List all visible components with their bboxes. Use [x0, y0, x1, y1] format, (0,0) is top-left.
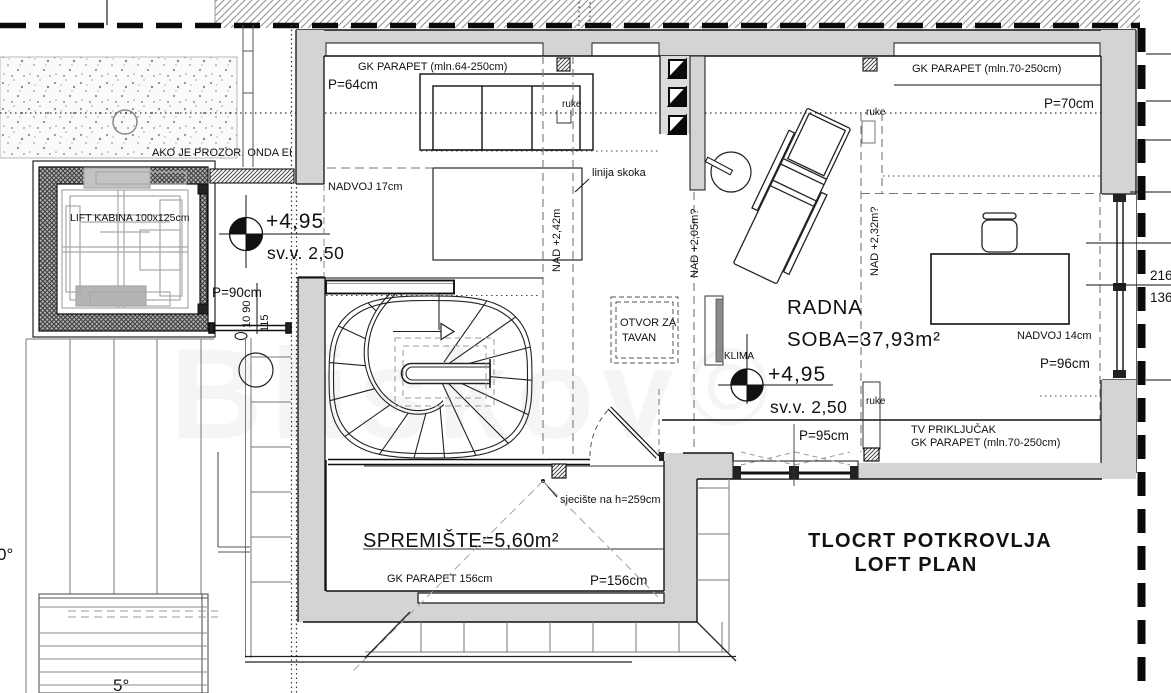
svg-text:NAD +2,42m: NAD +2,42m — [551, 209, 563, 272]
svg-text:GK PARAPET (mln.64-250cm): GK PARAPET (mln.64-250cm) — [358, 61, 507, 73]
svg-text:Bliskov: Bliskov — [170, 323, 681, 466]
svg-text:NADVOJ 17cm: NADVOJ 17cm — [328, 181, 403, 193]
svg-text:NAD +2,05m?: NAD +2,05m? — [689, 209, 701, 278]
svg-text:LIFT KABINA 100x125cm: LIFT KABINA 100x125cm — [70, 212, 190, 224]
svg-text:0°: 0° — [0, 545, 13, 564]
svg-text:P=70cm: P=70cm — [1044, 96, 1094, 111]
svg-text:OTVOR ZA: OTVOR ZA — [620, 317, 677, 329]
svg-text:10 90: 10 90 — [241, 300, 253, 328]
svg-text:+4,95: +4,95 — [768, 363, 826, 386]
svg-text:sjecište na h=259cm: sjecište na h=259cm — [560, 494, 661, 506]
svg-text:RADNA: RADNA — [787, 296, 863, 319]
svg-text:TV PRIKLJUČAK: TV PRIKLJUČAK — [911, 423, 997, 436]
svg-text:P=64cm: P=64cm — [328, 77, 378, 92]
svg-text:P=90cm: P=90cm — [212, 285, 262, 300]
svg-text:P=95cm: P=95cm — [799, 428, 849, 443]
svg-text:ruke: ruke — [866, 396, 886, 407]
svg-text:P=156cm: P=156cm — [590, 573, 647, 588]
svg-text:ruke: ruke — [562, 99, 582, 110]
svg-text:136: 136 — [1150, 290, 1171, 305]
svg-text:+4,95: +4,95 — [266, 210, 324, 233]
svg-text:ruke: ruke — [866, 107, 886, 118]
svg-text:NADVOJ 14cm: NADVOJ 14cm — [1017, 330, 1092, 342]
svg-text:sv.v. 2,50: sv.v. 2,50 — [267, 243, 344, 263]
svg-text:216: 216 — [1150, 268, 1171, 283]
svg-text:KLIMA: KLIMA — [724, 351, 754, 362]
svg-text:GK PARAPET (mln.70-250cm): GK PARAPET (mln.70-250cm) — [912, 63, 1061, 75]
svg-text:linija skoka: linija skoka — [592, 167, 647, 179]
svg-text:sv.v. 2,50: sv.v. 2,50 — [770, 397, 847, 417]
svg-text:AKO JE PROZOR, ONDA EI 90: AKO JE PROZOR, ONDA EI 90 — [152, 147, 307, 159]
svg-text:SPREMIŠTE=5,60m²: SPREMIŠTE=5,60m² — [363, 529, 559, 552]
svg-text:GK PARAPET (mln.70-250cm): GK PARAPET (mln.70-250cm) — [911, 437, 1060, 449]
svg-text:5°: 5° — [113, 676, 129, 693]
svg-text:TLOCRT POTKROVLJA: TLOCRT POTKROVLJA — [808, 530, 1052, 552]
svg-text:TAVAN: TAVAN — [622, 332, 656, 344]
svg-text:NAD +2,32m?: NAD +2,32m? — [869, 207, 881, 276]
svg-text:GK PARAPET 156cm: GK PARAPET 156cm — [387, 573, 492, 585]
svg-text:P=96cm: P=96cm — [1040, 356, 1090, 371]
svg-text:SOBA=37,93m²: SOBA=37,93m² — [787, 328, 941, 351]
svg-text:LOFT PLAN: LOFT PLAN — [854, 554, 977, 576]
svg-text:115: 115 — [259, 314, 271, 332]
